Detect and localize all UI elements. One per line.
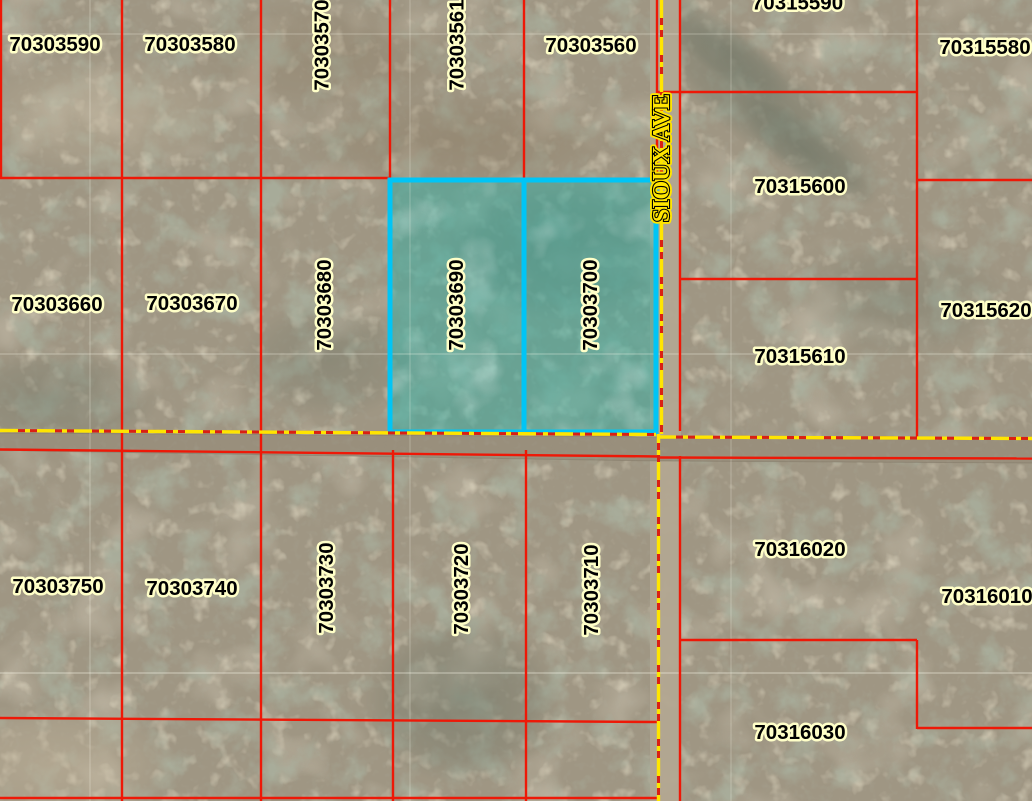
svg-text:70303710: 70303710 [580, 544, 603, 635]
svg-text:70303730: 70303730 [315, 542, 338, 633]
svg-text:70303700: 70303700 [579, 259, 602, 350]
svg-text:70316020: 70316020 [754, 538, 845, 561]
svg-text:SIOUX AVE: SIOUX AVE [649, 94, 675, 222]
svg-text:70315620: 70315620 [940, 299, 1031, 322]
svg-text:70303561: 70303561 [446, 0, 469, 91]
svg-text:70303740: 70303740 [146, 577, 237, 600]
svg-text:70315600: 70315600 [754, 175, 845, 198]
svg-text:70303580: 70303580 [144, 33, 235, 56]
svg-text:70303590: 70303590 [9, 33, 100, 56]
svg-text:70303720: 70303720 [450, 543, 473, 634]
svg-text:70316010: 70316010 [941, 585, 1032, 608]
svg-text:70303670: 70303670 [146, 292, 237, 315]
svg-text:70303660: 70303660 [11, 293, 102, 316]
svg-text:70315610: 70315610 [754, 345, 845, 368]
svg-text:70303680: 70303680 [313, 259, 336, 350]
svg-text:70303750: 70303750 [12, 575, 103, 598]
svg-text:70303690: 70303690 [445, 259, 468, 350]
svg-text:70316030: 70316030 [754, 721, 845, 744]
svg-text:70315590: 70315590 [752, 0, 843, 15]
svg-text:70303570: 70303570 [311, 0, 334, 91]
svg-text:70303560: 70303560 [545, 34, 636, 57]
svg-text:70315580: 70315580 [939, 36, 1030, 59]
